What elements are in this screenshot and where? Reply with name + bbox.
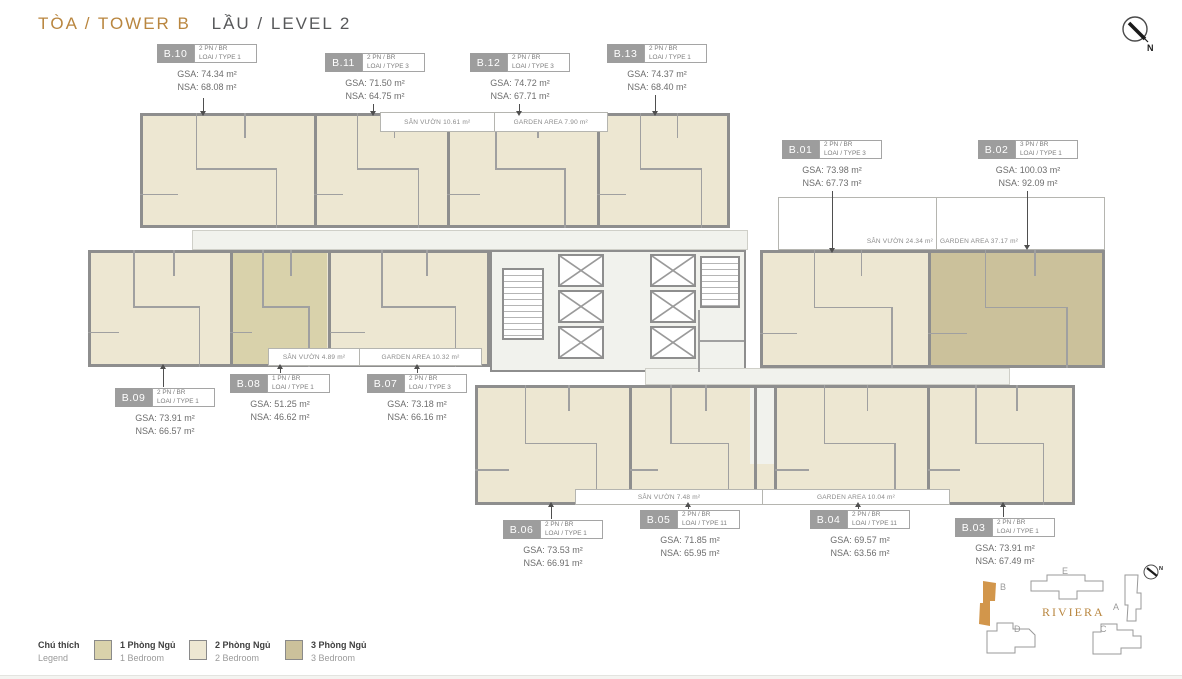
wall-segment: [475, 469, 509, 471]
unit-id-badge: B.01: [782, 140, 819, 159]
unit-type-label: LOAI / TYPE 1: [272, 384, 314, 392]
wall-segment: [357, 113, 359, 168]
unit-callout-b13: B.132 PN / BRLOAI / TYPE 1GSA: 74.37 m²N…: [607, 44, 707, 92]
unit-gsa: GSA: 74.34 m²: [157, 69, 257, 79]
wall-segment: [698, 340, 744, 342]
unit-callout-head: B.122 PN / BRLOAI / TYPE 3: [470, 53, 570, 72]
wall-segment: [426, 250, 428, 276]
site-minimap: B E RIVIERA A D C N: [962, 560, 1172, 672]
wall-segment: [629, 385, 632, 505]
unit-gsa: GSA: 73.91 m²: [955, 543, 1055, 553]
unit-type-box: 2 PN / BRLOAI / TYPE 3: [507, 53, 570, 72]
callout-arrowhead: [652, 111, 658, 116]
unit-callout-head: B.092 PN / BRLOAI / TYPE 1: [115, 388, 215, 407]
unit-callout-head: B.023 PN / BRLOAI / TYPE 1: [978, 140, 1078, 159]
unit-id-badge: B.11: [325, 53, 362, 72]
callout-arrowhead: [1000, 502, 1006, 507]
wall-segment: [381, 306, 455, 308]
unit-b02-highlight: [930, 253, 1102, 365]
unit-nsa: NSA: 64.75 m²: [325, 91, 425, 101]
callout-leader-line: [203, 98, 204, 112]
unit-callout-b06: B.062 PN / BRLOAI / TYPE 1GSA: 73.53 m²N…: [503, 520, 603, 568]
compass-icon: N: [1118, 12, 1162, 65]
unit-callout-b08: B.081 PN / BRLOAI / TYPE 1GSA: 51.25 m²N…: [230, 374, 330, 422]
unit-callout-head: B.062 PN / BRLOAI / TYPE 1: [503, 520, 603, 539]
callout-arrowhead: [829, 248, 835, 253]
wall-segment: [196, 113, 198, 168]
wall-segment: [314, 194, 343, 196]
wall-segment: [244, 113, 246, 138]
unit-callout-head: B.012 PN / BRLOAI / TYPE 3: [782, 140, 882, 159]
unit-bedrooms-label: 2 PN / BR: [157, 389, 185, 397]
minimap-label-e: E: [1062, 566, 1068, 576]
wall-segment: [525, 385, 527, 443]
callout-leader-line: [1027, 191, 1028, 246]
elevator-shaft: [558, 326, 604, 359]
wall-segment: [705, 385, 707, 411]
legend-swatch-3br: [285, 640, 303, 660]
unit-type-box: 2 PN / BRLOAI / TYPE 1: [644, 44, 707, 63]
wall-segment: [891, 307, 893, 368]
unit-type-label: LOAI / TYPE 1: [199, 54, 241, 62]
unit-type-label: LOAI / TYPE 11: [852, 520, 897, 528]
legend-title: Chú thích: [38, 640, 80, 650]
unit-nsa: NSA: 68.40 m²: [607, 82, 707, 92]
callout-arrowhead: [516, 111, 522, 116]
unit-type-box: 2 PN / BRLOAI / TYPE 1: [194, 44, 257, 63]
wall-segment: [1043, 443, 1045, 505]
unit-id-badge: B.12: [470, 53, 507, 72]
unit-gsa: GSA: 69.57 m²: [810, 535, 910, 545]
wall-segment: [495, 168, 564, 170]
unit-gsa: GSA: 73.53 m²: [503, 545, 603, 555]
legend-sublabel: 1 Bedroom: [120, 653, 164, 663]
wall-segment: [775, 469, 809, 471]
elevator-shaft: [650, 290, 696, 323]
wall-segment: [314, 113, 317, 228]
wall-segment: [140, 194, 178, 196]
wall-segment: [447, 194, 480, 196]
unit-type-label: LOAI / TYPE 3: [409, 384, 451, 392]
unit-callout-head: B.032 PN / BRLOAI / TYPE 1: [955, 518, 1055, 537]
minimap-label-a: A: [1113, 602, 1119, 612]
unit-id-badge: B.05: [640, 510, 677, 529]
elevator-shaft: [650, 326, 696, 359]
elevator-shaft: [650, 254, 696, 287]
unit-type-box: 2 PN / BRLOAI / TYPE 1: [992, 518, 1055, 537]
callout-arrowhead: [370, 111, 376, 116]
svg-text:N: N: [1159, 566, 1163, 572]
unit-callout-b04: B.042 PN / BRLOAI / TYPE 11GSA: 69.57 m²…: [810, 510, 910, 558]
unit-id-badge: B.09: [115, 388, 152, 407]
unit-type-box: 2 PN / BRLOAI / TYPE 1: [540, 520, 603, 539]
wall-segment: [867, 385, 869, 411]
unit-bedrooms-label: 1 PN / BR: [272, 375, 300, 383]
unit-bedrooms-label: 2 PN / BR: [649, 45, 677, 53]
wall-segment: [230, 250, 233, 367]
garden-label: SÂN VƯỜN 7.48 m²: [576, 490, 762, 504]
wall-segment: [677, 113, 679, 138]
garden-strip-top: SÂN VƯỜN 10.61 m² GARDEN AREA 7.90 m²: [380, 112, 608, 132]
plan-region: [645, 368, 1010, 385]
wall-segment: [381, 250, 383, 306]
wall-segment: [824, 443, 894, 445]
legend-subtitle: Legend: [38, 653, 68, 663]
unit-type-label: LOAI / TYPE 1: [545, 530, 587, 538]
unit-callout-b01: B.012 PN / BRLOAI / TYPE 3GSA: 73.98 m²N…: [782, 140, 882, 188]
unit-type-label: LOAI / TYPE 1: [649, 54, 691, 62]
unit-type-label: LOAI / TYPE 3: [367, 63, 409, 71]
wall-segment: [824, 385, 826, 443]
unit-type-label: LOAI / TYPE 1: [157, 398, 199, 406]
unit-type-box: 1 PN / BRLOAI / TYPE 1: [267, 374, 330, 393]
garden-label: GARDEN AREA 10.32 m²: [359, 349, 481, 365]
legend-label: 1 Phòng Ngủ: [120, 640, 176, 650]
legend-label: 2 Phòng Ngủ: [215, 640, 271, 650]
unit-bedrooms-label: 3 PN / BR: [1020, 141, 1048, 149]
wall-segment: [1016, 385, 1018, 411]
wall-segment: [1066, 307, 1068, 368]
unit-type-box: 2 PN / BRLOAI / TYPE 1: [152, 388, 215, 407]
unit-callout-head: B.081 PN / BRLOAI / TYPE 1: [230, 374, 330, 393]
callout-arrowhead: [1024, 245, 1030, 250]
wall-segment: [262, 306, 308, 308]
unit-type-box: 2 PN / BRLOAI / TYPE 3: [404, 374, 467, 393]
unit-bedrooms-label: 2 PN / BR: [545, 521, 573, 529]
stairs: [502, 268, 544, 340]
unit-type-label: LOAI / TYPE 3: [824, 150, 866, 158]
unit-callout-b09: B.092 PN / BRLOAI / TYPE 1GSA: 73.91 m²N…: [115, 388, 215, 436]
wall-segment: [928, 333, 967, 335]
callout-arrowhead: [160, 364, 166, 369]
wall-segment: [330, 332, 365, 334]
unit-nsa: NSA: 67.73 m²: [782, 178, 882, 188]
floorplan-page: TÒA / TOWER B LẦU / LEVEL 2 N SÂN VƯỜN 1…: [0, 0, 1182, 679]
garden-label: SÂN VƯỜN 10.61 m²: [381, 113, 494, 131]
wall-segment: [290, 250, 292, 276]
wall-segment: [1034, 250, 1036, 276]
minimap-label-c: C: [1100, 624, 1107, 634]
unit-type-box: 2 PN / BRLOAI / TYPE 11: [847, 510, 910, 529]
garden-label: GARDEN AREA 7.90 m²: [494, 113, 608, 131]
plan-region: [192, 230, 748, 250]
wall-segment: [927, 385, 930, 505]
garden-label: GARDEN AREA 37.17 m²: [936, 198, 1104, 249]
callout-leader-line: [551, 506, 552, 519]
unit-callout-b02: B.023 PN / BRLOAI / TYPE 1GSA: 100.03 m²…: [978, 140, 1078, 188]
callout-leader-line: [655, 95, 656, 112]
unit-id-badge: B.06: [503, 520, 540, 539]
callout-arrowhead: [277, 364, 283, 369]
unit-callout-b05: B.052 PN / BRLOAI / TYPE 11GSA: 71.85 m²…: [640, 510, 740, 558]
wall-segment: [861, 250, 863, 276]
wall-segment: [357, 168, 418, 170]
wall-segment: [88, 332, 119, 334]
page-title: TÒA / TOWER B LẦU / LEVEL 2: [38, 14, 351, 34]
callout-leader-line: [163, 368, 164, 387]
unit-nsa: NSA: 66.57 m²: [115, 426, 215, 436]
wall-segment: [564, 168, 566, 228]
wall-segment: [754, 385, 757, 505]
unit-nsa: NSA: 46.62 m²: [230, 412, 330, 422]
garden-label: SÂN VƯỜN 24.34 m²: [779, 198, 936, 249]
wall-segment: [774, 385, 777, 505]
legend-swatch-1br: [94, 640, 112, 660]
elevator-shaft: [558, 254, 604, 287]
wall-segment: [597, 194, 626, 196]
wall-segment: [670, 385, 672, 443]
wall-segment: [173, 250, 175, 276]
garden-strip-right: SÂN VƯỜN 24.34 m² GARDEN AREA 37.17 m²: [778, 197, 1105, 250]
unit-type-box: 3 PN / BRLOAI / TYPE 1: [1015, 140, 1078, 159]
unit-nsa: NSA: 92.09 m²: [978, 178, 1078, 188]
wall-segment: [525, 443, 596, 445]
wall-segment: [670, 443, 728, 445]
unit-type-label: LOAI / TYPE 1: [1020, 150, 1062, 158]
unit-id-badge: B.02: [978, 140, 1015, 159]
minimap-building-d-shape: [986, 622, 1036, 654]
callout-arrowhead: [414, 364, 420, 369]
wall-segment: [985, 250, 987, 307]
unit-type-label: LOAI / TYPE 3: [512, 63, 554, 71]
wall-segment: [701, 168, 703, 228]
unit-type-box: 2 PN / BRLOAI / TYPE 11: [677, 510, 740, 529]
wall-segment: [196, 168, 276, 170]
unit-callout-b11: B.112 PN / BRLOAI / TYPE 3GSA: 71.50 m²N…: [325, 53, 425, 101]
wall-segment: [760, 333, 797, 335]
wall-segment: [928, 250, 931, 368]
callout-arrowhead: [685, 502, 691, 507]
unit-gsa: GSA: 51.25 m²: [230, 399, 330, 409]
wall-segment: [262, 250, 264, 306]
garden-label: SÂN VƯỜN 4.89 m²: [269, 349, 359, 365]
elevator-shaft: [558, 290, 604, 323]
unit-nsa: NSA: 65.95 m²: [640, 548, 740, 558]
wall-segment: [640, 168, 701, 170]
callout-arrowhead: [200, 111, 206, 116]
unit-callout-b10: B.102 PN / BRLOAI / TYPE 1GSA: 74.34 m²N…: [157, 44, 257, 92]
callout-arrowhead: [855, 502, 861, 507]
unit-bedrooms-label: 2 PN / BR: [199, 45, 227, 53]
unit-type-box: 2 PN / BRLOAI / TYPE 3: [819, 140, 882, 159]
wall-segment: [568, 385, 570, 411]
unit-gsa: GSA: 71.85 m²: [640, 535, 740, 545]
wall-segment: [199, 306, 201, 367]
unit-id-badge: B.04: [810, 510, 847, 529]
wall-segment: [814, 307, 891, 309]
minimap-label-b: B: [1000, 582, 1006, 592]
wall-segment: [928, 469, 960, 471]
unit-callout-head: B.052 PN / BRLOAI / TYPE 11: [640, 510, 740, 529]
unit-gsa: GSA: 73.98 m²: [782, 165, 882, 175]
unit-callout-head: B.112 PN / BRLOAI / TYPE 3: [325, 53, 425, 72]
unit-gsa: GSA: 73.91 m²: [115, 413, 215, 423]
unit-gsa: GSA: 74.37 m²: [607, 69, 707, 79]
wall-segment: [985, 307, 1066, 309]
wall-segment: [230, 332, 252, 334]
garden-strip-middle: SÂN VƯỜN 4.89 m² GARDEN AREA 10.32 m²: [268, 348, 482, 366]
unit-nsa: NSA: 63.56 m²: [810, 548, 910, 558]
callout-leader-line: [832, 191, 833, 249]
wall-segment: [975, 443, 1043, 445]
unit-callout-b03: B.032 PN / BRLOAI / TYPE 1GSA: 73.91 m²N…: [955, 518, 1055, 566]
unit-bedrooms-label: 2 PN / BR: [512, 54, 540, 62]
level-title: LẦU / LEVEL 2: [212, 14, 352, 33]
legend-label: 3 Phòng Ngủ: [311, 640, 367, 650]
unit-bedrooms-label: 2 PN / BR: [852, 511, 880, 519]
unit-type-label: LOAI / TYPE 11: [682, 520, 727, 528]
minimap-building-e-shape: [1030, 574, 1104, 600]
unit-id-badge: B.10: [157, 44, 194, 63]
unit-nsa: NSA: 67.71 m²: [470, 91, 570, 101]
unit-nsa: NSA: 68.08 m²: [157, 82, 257, 92]
minimap-label-d: D: [1014, 624, 1021, 634]
wall-segment: [814, 250, 816, 307]
unit-callout-head: B.072 PN / BRLOAI / TYPE 3: [367, 374, 467, 393]
unit-nsa: NSA: 66.91 m²: [503, 558, 603, 568]
unit-id-badge: B.13: [607, 44, 644, 63]
legend-swatch-2br: [189, 640, 207, 660]
legend-sublabel: 2 Bedroom: [215, 653, 259, 663]
unit-gsa: GSA: 73.18 m²: [367, 399, 467, 409]
unit-id-badge: B.08: [230, 374, 267, 393]
wall-segment: [630, 469, 658, 471]
unit-id-badge: B.07: [367, 374, 404, 393]
unit-bedrooms-label: 2 PN / BR: [367, 54, 395, 62]
callout-leader-line: [1003, 506, 1004, 517]
unit-bedrooms-label: 2 PN / BR: [409, 375, 437, 383]
garden-strip-bottom: SÂN VƯỜN 7.48 m² GARDEN AREA 10.04 m²: [575, 489, 950, 505]
unit-gsa: GSA: 100.03 m²: [978, 165, 1078, 175]
minimap-building-b-shape: [978, 580, 998, 628]
unit-callout-head: B.042 PN / BRLOAI / TYPE 11: [810, 510, 910, 529]
wall-segment: [640, 113, 642, 168]
minimap-building-a-shape: [1122, 574, 1142, 622]
unit-bedrooms-label: 2 PN / BR: [997, 519, 1025, 527]
unit-gsa: GSA: 74.72 m²: [470, 78, 570, 88]
project-name: RIVIERA: [1042, 605, 1105, 620]
unit-bedrooms-label: 2 PN / BR: [824, 141, 852, 149]
wall-segment: [975, 385, 977, 443]
unit-callout-head: B.132 PN / BRLOAI / TYPE 1: [607, 44, 707, 63]
stairs: [700, 256, 740, 308]
unit-type-box: 2 PN / BRLOAI / TYPE 3: [362, 53, 425, 72]
unit-nsa: NSA: 66.16 m²: [367, 412, 467, 422]
unit-bedrooms-label: 2 PN / BR: [682, 511, 710, 519]
unit-id-badge: B.03: [955, 518, 992, 537]
unit-callout-b07: B.072 PN / BRLOAI / TYPE 3GSA: 73.18 m²N…: [367, 374, 467, 422]
unit-type-label: LOAI / TYPE 1: [997, 528, 1039, 536]
legend-sublabel: 3 Bedroom: [311, 653, 355, 663]
unit-gsa: GSA: 71.50 m²: [325, 78, 425, 88]
compass-n-label: N: [1147, 43, 1154, 53]
wall-segment: [276, 168, 278, 228]
wall-segment: [133, 306, 198, 308]
minimap-compass-icon: N: [1142, 562, 1168, 584]
callout-arrowhead: [548, 502, 554, 507]
tower-title: TÒA / TOWER B: [38, 14, 191, 33]
wall-segment: [133, 250, 135, 306]
unit-callout-head: B.102 PN / BRLOAI / TYPE 1: [157, 44, 257, 63]
wall-segment: [418, 168, 420, 228]
unit-callout-b12: B.122 PN / BRLOAI / TYPE 3GSA: 74.72 m²N…: [470, 53, 570, 101]
